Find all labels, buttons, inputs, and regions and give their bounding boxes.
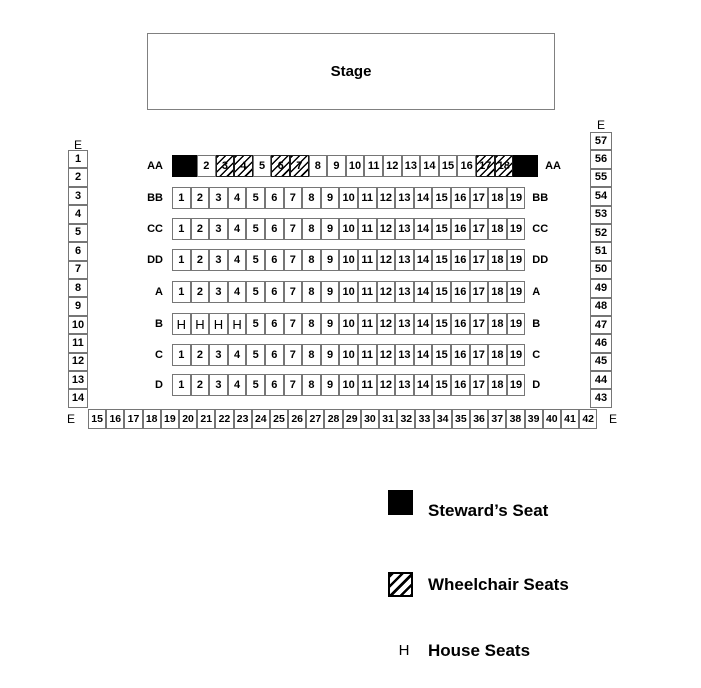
seat-B-11[interactable]: 11 — [358, 313, 377, 335]
bottom-row: 1516171819202122232425262728293031323334… — [88, 409, 597, 429]
seat-E-48[interactable]: 48 — [590, 298, 612, 316]
seat-A-5[interactable]: 5 — [246, 281, 265, 303]
stewards-seat-swatch — [388, 490, 413, 515]
seat-E-37[interactable]: 37 — [488, 409, 506, 429]
row-AA: AA23456789101112131415161718AA — [133, 155, 575, 177]
seat-E-23[interactable]: 23 — [234, 409, 252, 429]
seat-D-14[interactable]: 14 — [414, 374, 433, 396]
seat-BB-11[interactable]: 11 — [358, 187, 377, 209]
row-label-BB-left: BB — [133, 187, 163, 209]
row-label-AA-right: AA — [545, 155, 575, 177]
seat-B-1[interactable]: H — [172, 313, 191, 335]
seat-E-14[interactable]: 14 — [68, 389, 88, 407]
seat-E-20[interactable]: 20 — [179, 409, 197, 429]
seat-E-52[interactable]: 52 — [590, 224, 612, 242]
seat-A-16[interactable]: 16 — [451, 281, 470, 303]
seat-CC-3[interactable]: 3 — [209, 218, 228, 240]
seat-E-30[interactable]: 30 — [361, 409, 379, 429]
seat-AA-18[interactable]: 18 — [495, 155, 514, 177]
seating-chart: Stage E 1234567891011121314 E 5756555453… — [0, 0, 701, 688]
row-label-C-left: C — [133, 344, 163, 366]
seat-D-4[interactable]: 4 — [228, 374, 247, 396]
seat-CC-18[interactable]: 18 — [488, 218, 507, 240]
seat-C-16[interactable]: 16 — [451, 344, 470, 366]
stage-label: Stage — [331, 63, 372, 80]
seat-DD-2[interactable]: 2 — [191, 249, 210, 271]
seat-E-24[interactable]: 24 — [252, 409, 270, 429]
seat-C-11[interactable]: 11 — [358, 344, 377, 366]
seat-DD-12[interactable]: 12 — [377, 249, 396, 271]
seat-E-31[interactable]: 31 — [379, 409, 397, 429]
row-label-BB-right: BB — [532, 187, 562, 209]
seat-A-3[interactable]: 3 — [209, 281, 228, 303]
seat-B-3[interactable]: H — [209, 313, 228, 335]
seat-E-43[interactable]: 43 — [590, 389, 612, 407]
seat-DD-11[interactable]: 11 — [358, 249, 377, 271]
row-label-CC-left: CC — [133, 218, 163, 240]
seat-D-12[interactable]: 12 — [377, 374, 396, 396]
seat-D-8[interactable]: 8 — [302, 374, 321, 396]
seat-AA-19[interactable] — [513, 155, 538, 177]
seat-DD-14[interactable]: 14 — [414, 249, 433, 271]
seat-AA-15[interactable]: 15 — [439, 155, 458, 177]
seat-BB-9[interactable]: 9 — [321, 187, 340, 209]
seat-D-16[interactable]: 16 — [451, 374, 470, 396]
seat-E-7[interactable]: 7 — [68, 261, 88, 279]
seat-E-21[interactable]: 21 — [197, 409, 215, 429]
seat-B-16[interactable]: 16 — [451, 313, 470, 335]
house-seats-symbol: H — [394, 641, 414, 661]
seat-A-17[interactable]: 17 — [470, 281, 489, 303]
seat-CC-14[interactable]: 14 — [414, 218, 433, 240]
row-label-AA-left: AA — [133, 155, 163, 177]
seat-DD-15[interactable]: 15 — [432, 249, 451, 271]
seat-C-18[interactable]: 18 — [488, 344, 507, 366]
seat-BB-5[interactable]: 5 — [246, 187, 265, 209]
seat-BB-3[interactable]: 3 — [209, 187, 228, 209]
seat-E-56[interactable]: 56 — [590, 150, 612, 168]
seat-E-27[interactable]: 27 — [306, 409, 324, 429]
seat-CC-11[interactable]: 11 — [358, 218, 377, 240]
seat-BB-2[interactable]: 2 — [191, 187, 210, 209]
seat-D-2[interactable]: 2 — [191, 374, 210, 396]
seat-DD-17[interactable]: 17 — [470, 249, 489, 271]
seat-E-55[interactable]: 55 — [590, 169, 612, 187]
seat-C-17[interactable]: 17 — [470, 344, 489, 366]
seat-D-9[interactable]: 9 — [321, 374, 340, 396]
seat-CC-9[interactable]: 9 — [321, 218, 340, 240]
seat-A-9[interactable]: 9 — [321, 281, 340, 303]
seat-E-28[interactable]: 28 — [324, 409, 342, 429]
seat-E-32[interactable]: 32 — [397, 409, 415, 429]
seat-C-2[interactable]: 2 — [191, 344, 210, 366]
seat-B-9[interactable]: 9 — [321, 313, 340, 335]
seat-BB-17[interactable]: 17 — [470, 187, 489, 209]
seat-BB-16[interactable]: 16 — [451, 187, 470, 209]
seat-D-7[interactable]: 7 — [284, 374, 303, 396]
seat-C-13[interactable]: 13 — [395, 344, 414, 366]
seat-CC-8[interactable]: 8 — [302, 218, 321, 240]
seat-DD-8[interactable]: 8 — [302, 249, 321, 271]
seat-AA-3[interactable]: 3 — [216, 155, 235, 177]
seat-B-17[interactable]: 17 — [470, 313, 489, 335]
seat-E-25[interactable]: 25 — [270, 409, 288, 429]
seat-DD-7[interactable]: 7 — [284, 249, 303, 271]
seat-D-19[interactable]: 19 — [507, 374, 526, 396]
seat-DD-16[interactable]: 16 — [451, 249, 470, 271]
seat-C-14[interactable]: 14 — [414, 344, 433, 366]
seat-AA-12[interactable]: 12 — [383, 155, 402, 177]
seat-E-34[interactable]: 34 — [434, 409, 452, 429]
seat-AA-4[interactable]: 4 — [234, 155, 253, 177]
seat-D-17[interactable]: 17 — [470, 374, 489, 396]
seat-B-5[interactable]: 5 — [246, 313, 265, 335]
row-A: A12345678910111213141516171819A — [133, 281, 562, 303]
house-seats-label: House Seats — [428, 640, 530, 662]
seat-E-10[interactable]: 10 — [68, 316, 88, 334]
seat-C-5[interactable]: 5 — [246, 344, 265, 366]
seat-D-15[interactable]: 15 — [432, 374, 451, 396]
seat-D-18[interactable]: 18 — [488, 374, 507, 396]
seat-B-2[interactable]: H — [191, 313, 210, 335]
seat-E-13[interactable]: 13 — [68, 371, 88, 389]
seat-D-6[interactable]: 6 — [265, 374, 284, 396]
seat-E-17[interactable]: 17 — [124, 409, 142, 429]
seat-E-29[interactable]: 29 — [343, 409, 361, 429]
seat-CC-15[interactable]: 15 — [432, 218, 451, 240]
seat-A-7[interactable]: 7 — [284, 281, 303, 303]
seat-A-10[interactable]: 10 — [339, 281, 358, 303]
seat-C-10[interactable]: 10 — [339, 344, 358, 366]
seat-D-11[interactable]: 11 — [358, 374, 377, 396]
seat-E-1[interactable]: 1 — [68, 150, 88, 168]
seat-A-11[interactable]: 11 — [358, 281, 377, 303]
seat-BB-1[interactable]: 1 — [172, 187, 191, 209]
seat-A-15[interactable]: 15 — [432, 281, 451, 303]
seat-E-8[interactable]: 8 — [68, 279, 88, 297]
row-label-CC-right: CC — [532, 218, 562, 240]
seat-E-9[interactable]: 9 — [68, 297, 88, 315]
seat-CC-13[interactable]: 13 — [395, 218, 414, 240]
seat-DD-1[interactable]: 1 — [172, 249, 191, 271]
seat-AA-8[interactable]: 8 — [309, 155, 328, 177]
seat-AA-11[interactable]: 11 — [364, 155, 383, 177]
seat-BB-13[interactable]: 13 — [395, 187, 414, 209]
seat-E-15[interactable]: 15 — [88, 409, 106, 429]
seat-E-41[interactable]: 41 — [561, 409, 579, 429]
seat-CC-4[interactable]: 4 — [228, 218, 247, 240]
seat-E-54[interactable]: 54 — [590, 187, 612, 205]
seat-AA-16[interactable]: 16 — [457, 155, 476, 177]
seat-E-39[interactable]: 39 — [525, 409, 543, 429]
seat-C-9[interactable]: 9 — [321, 344, 340, 366]
seat-DD-18[interactable]: 18 — [488, 249, 507, 271]
row-label-B-left: B — [133, 313, 163, 335]
left-column: 1234567891011121314 — [68, 150, 88, 408]
seat-B-14[interactable]: 14 — [414, 313, 433, 335]
row-label-DD-right: DD — [532, 249, 562, 271]
seat-B-8[interactable]: 8 — [302, 313, 321, 335]
seat-A-13[interactable]: 13 — [395, 281, 414, 303]
seat-E-35[interactable]: 35 — [452, 409, 470, 429]
seat-AA-14[interactable]: 14 — [420, 155, 439, 177]
row-label-DD-left: DD — [133, 249, 163, 271]
row-B: BHHHH5678910111213141516171819B — [133, 313, 562, 335]
seat-D-5[interactable]: 5 — [246, 374, 265, 396]
seat-BB-10[interactable]: 10 — [339, 187, 358, 209]
bottom-row-label-right: E — [602, 409, 624, 429]
seat-E-5[interactable]: 5 — [68, 224, 88, 242]
seat-A-19[interactable]: 19 — [507, 281, 526, 303]
row-label-C-right: C — [532, 344, 562, 366]
seat-DD-19[interactable]: 19 — [507, 249, 526, 271]
row-label-B-right: B — [532, 313, 562, 335]
seat-B-7[interactable]: 7 — [284, 313, 303, 335]
seat-C-12[interactable]: 12 — [377, 344, 396, 366]
seat-CC-7[interactable]: 7 — [284, 218, 303, 240]
row-label-D-right: D — [532, 374, 562, 396]
seat-CC-10[interactable]: 10 — [339, 218, 358, 240]
seat-E-40[interactable]: 40 — [543, 409, 561, 429]
seat-A-4[interactable]: 4 — [228, 281, 247, 303]
seat-E-51[interactable]: 51 — [590, 242, 612, 260]
seat-C-7[interactable]: 7 — [284, 344, 303, 366]
row-label-D-left: D — [133, 374, 163, 396]
seat-D-1[interactable]: 1 — [172, 374, 191, 396]
seat-BB-15[interactable]: 15 — [432, 187, 451, 209]
seat-A-1[interactable]: 1 — [172, 281, 191, 303]
seat-AA-10[interactable]: 10 — [346, 155, 365, 177]
wheelchair-seats-label: Wheelchair Seats — [428, 574, 569, 596]
seat-AA-7[interactable]: 7 — [290, 155, 309, 177]
right-column-label: E — [590, 118, 612, 132]
seat-AA-17[interactable]: 17 — [476, 155, 495, 177]
seat-DD-13[interactable]: 13 — [395, 249, 414, 271]
seat-CC-19[interactable]: 19 — [507, 218, 526, 240]
seat-B-10[interactable]: 10 — [339, 313, 358, 335]
seat-CC-16[interactable]: 16 — [451, 218, 470, 240]
seat-A-8[interactable]: 8 — [302, 281, 321, 303]
seat-BB-7[interactable]: 7 — [284, 187, 303, 209]
seat-DD-5[interactable]: 5 — [246, 249, 265, 271]
seat-B-15[interactable]: 15 — [432, 313, 451, 335]
seat-BB-18[interactable]: 18 — [488, 187, 507, 209]
seat-E-45[interactable]: 45 — [590, 353, 612, 371]
seat-CC-12[interactable]: 12 — [377, 218, 396, 240]
seat-A-6[interactable]: 6 — [265, 281, 284, 303]
seat-AA-6[interactable]: 6 — [271, 155, 290, 177]
seat-E-19[interactable]: 19 — [161, 409, 179, 429]
seat-DD-6[interactable]: 6 — [265, 249, 284, 271]
row-BB: BB12345678910111213141516171819BB — [133, 187, 562, 209]
seat-E-42[interactable]: 42 — [579, 409, 597, 429]
seat-CC-2[interactable]: 2 — [191, 218, 210, 240]
seat-BB-4[interactable]: 4 — [228, 187, 247, 209]
seat-D-10[interactable]: 10 — [339, 374, 358, 396]
seat-C-8[interactable]: 8 — [302, 344, 321, 366]
seat-A-18[interactable]: 18 — [488, 281, 507, 303]
seat-BB-12[interactable]: 12 — [377, 187, 396, 209]
seat-D-13[interactable]: 13 — [395, 374, 414, 396]
seat-C-6[interactable]: 6 — [265, 344, 284, 366]
seat-AA-1[interactable] — [172, 155, 197, 177]
seat-AA-13[interactable]: 13 — [402, 155, 421, 177]
seat-E-16[interactable]: 16 — [106, 409, 124, 429]
seat-AA-2[interactable]: 2 — [197, 155, 216, 177]
right-column: 575655545352515049484746454443 — [590, 132, 612, 408]
seat-BB-8[interactable]: 8 — [302, 187, 321, 209]
seat-DD-10[interactable]: 10 — [339, 249, 358, 271]
seat-CC-5[interactable]: 5 — [246, 218, 265, 240]
seat-E-57[interactable]: 57 — [590, 132, 612, 150]
seat-A-14[interactable]: 14 — [414, 281, 433, 303]
seat-E-50[interactable]: 50 — [590, 261, 612, 279]
seat-E-4[interactable]: 4 — [68, 205, 88, 223]
seat-DD-4[interactable]: 4 — [228, 249, 247, 271]
seat-E-6[interactable]: 6 — [68, 242, 88, 260]
seat-B-13[interactable]: 13 — [395, 313, 414, 335]
seat-E-3[interactable]: 3 — [68, 187, 88, 205]
row-C: C12345678910111213141516171819C — [133, 344, 562, 366]
wheelchair-seats-swatch — [388, 572, 413, 597]
seat-CC-6[interactable]: 6 — [265, 218, 284, 240]
seat-B-12[interactable]: 12 — [377, 313, 396, 335]
seat-E-53[interactable]: 53 — [590, 206, 612, 224]
seat-CC-17[interactable]: 17 — [470, 218, 489, 240]
seat-E-12[interactable]: 12 — [68, 353, 88, 371]
seat-E-44[interactable]: 44 — [590, 371, 612, 389]
seat-E-47[interactable]: 47 — [590, 316, 612, 334]
seat-A-12[interactable]: 12 — [377, 281, 396, 303]
seat-E-2[interactable]: 2 — [68, 168, 88, 186]
seat-E-26[interactable]: 26 — [288, 409, 306, 429]
seat-E-11[interactable]: 11 — [68, 334, 88, 352]
seat-D-3[interactable]: 3 — [209, 374, 228, 396]
seat-BB-19[interactable]: 19 — [507, 187, 526, 209]
seat-AA-5[interactable]: 5 — [253, 155, 272, 177]
seat-BB-6[interactable]: 6 — [265, 187, 284, 209]
seat-E-18[interactable]: 18 — [143, 409, 161, 429]
seat-E-22[interactable]: 22 — [215, 409, 233, 429]
seat-B-6[interactable]: 6 — [265, 313, 284, 335]
seat-BB-14[interactable]: 14 — [414, 187, 433, 209]
seat-A-2[interactable]: 2 — [191, 281, 210, 303]
seat-E-38[interactable]: 38 — [506, 409, 524, 429]
seat-C-4[interactable]: 4 — [228, 344, 247, 366]
seat-C-3[interactable]: 3 — [209, 344, 228, 366]
row-label-A-left: A — [133, 281, 163, 303]
seat-B-19[interactable]: 19 — [507, 313, 526, 335]
row-D: D12345678910111213141516171819D — [133, 374, 562, 396]
seat-C-19[interactable]: 19 — [507, 344, 526, 366]
seat-DD-3[interactable]: 3 — [209, 249, 228, 271]
seat-B-4[interactable]: H — [228, 313, 247, 335]
seat-DD-9[interactable]: 9 — [321, 249, 340, 271]
seat-E-36[interactable]: 36 — [470, 409, 488, 429]
bottom-row-label-left: E — [60, 409, 82, 429]
seat-CC-1[interactable]: 1 — [172, 218, 191, 240]
seat-E-33[interactable]: 33 — [415, 409, 433, 429]
seat-E-46[interactable]: 46 — [590, 334, 612, 352]
seat-C-1[interactable]: 1 — [172, 344, 191, 366]
seat-C-15[interactable]: 15 — [432, 344, 451, 366]
row-CC: CC12345678910111213141516171819CC — [133, 218, 562, 240]
stewards-seat-label: Steward’s Seat — [428, 500, 548, 522]
seat-B-18[interactable]: 18 — [488, 313, 507, 335]
row-DD: DD12345678910111213141516171819DD — [133, 249, 562, 271]
seat-E-49[interactable]: 49 — [590, 279, 612, 297]
seat-AA-9[interactable]: 9 — [327, 155, 346, 177]
stage-box: Stage — [147, 33, 555, 110]
row-label-A-right: A — [532, 281, 562, 303]
